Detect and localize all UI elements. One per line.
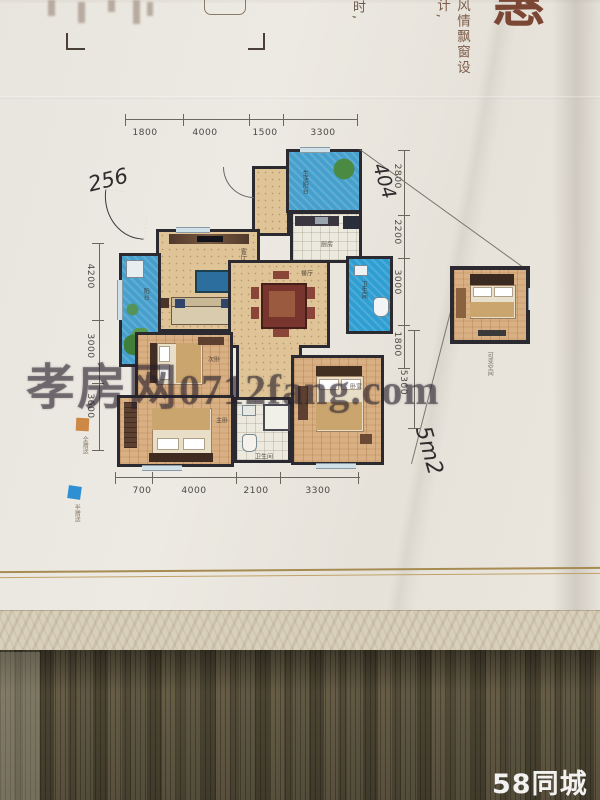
- window: [316, 463, 356, 469]
- plants: [331, 158, 357, 180]
- dim-tick: [115, 472, 116, 484]
- small-text-smudge: [108, 0, 115, 12]
- chair: [251, 287, 259, 299]
- room-dining: 餐厅: [228, 260, 330, 348]
- sofa-pillow: [175, 299, 185, 308]
- header-big-character: 惠: [492, 0, 558, 30]
- dresser: [478, 330, 506, 336]
- photo-of-floorplan-flyer: 时, 风情飘窗设计, 惠 生活阳台 厨房 卫生间 客厅: [0, 0, 600, 800]
- small-text-smudge: [147, 2, 153, 16]
- inset-flex-room: [450, 266, 530, 344]
- kitchen-sink: [315, 217, 328, 224]
- window: [117, 280, 123, 320]
- legend-label-full-gift: 全赠送: [80, 436, 89, 454]
- tv: [197, 236, 223, 242]
- watermark-site-url: 0712fang.com: [179, 367, 439, 415]
- dim-tick: [152, 472, 153, 484]
- room-label: 主卧: [216, 418, 228, 424]
- room-label: 餐厅: [301, 271, 313, 277]
- room-entry: [252, 166, 290, 236]
- window: [142, 465, 182, 471]
- dim-tick: [183, 114, 184, 126]
- room-label: 阳台: [141, 288, 150, 300]
- paper-crease: [0, 96, 600, 99]
- dining-table-center: [269, 291, 295, 317]
- crop-corner-mark: [66, 33, 85, 50]
- plants: [125, 302, 140, 317]
- dim-tick: [398, 258, 410, 259]
- bed-headboard: [149, 453, 213, 462]
- dim-tick: [280, 472, 281, 484]
- inset-window-gap: [528, 288, 533, 310]
- dim-bottom-4: 3300: [300, 485, 337, 495]
- dim-tick: [398, 325, 410, 326]
- dim-left-1: 4200: [85, 264, 95, 301]
- bath-sink: [354, 265, 368, 276]
- watermark-site-name: 孝房网: [26, 348, 179, 419]
- dim-tick: [236, 472, 237, 484]
- room-bath-1: 卫生间: [346, 256, 393, 334]
- room-label: 厨房: [321, 242, 333, 248]
- wardrobe: [456, 288, 466, 318]
- header-vertical-text-shi: 时,: [348, 0, 367, 21]
- chair: [307, 287, 315, 299]
- dim-tick: [92, 450, 104, 451]
- crop-corner-mark: [248, 33, 265, 50]
- legend-label-half-gift: 半赠送: [72, 504, 81, 522]
- small-text-smudge: [133, 0, 140, 24]
- header-vertical-text-design: 风情飘窗设计,: [432, 0, 472, 84]
- room-label: 卫生间: [255, 454, 273, 460]
- small-text-smudge: [48, 0, 55, 16]
- wardrobe: [198, 337, 224, 345]
- chair: [273, 329, 289, 337]
- window: [176, 227, 210, 233]
- dim-line-top: [125, 119, 357, 120]
- dim-tick: [398, 150, 410, 151]
- room-label: 客厅: [238, 248, 247, 260]
- dim-tick: [283, 114, 284, 126]
- dim-top-4: 3300: [305, 127, 342, 137]
- dim-tick: [357, 114, 358, 126]
- wood-floor-light-board: [0, 652, 40, 800]
- dim-tick: [125, 114, 126, 126]
- pillow: [473, 287, 492, 297]
- dim-tick: [92, 243, 104, 244]
- side-table: [160, 298, 169, 308]
- washing-machine: [126, 260, 144, 278]
- dim-tick: [358, 472, 359, 484]
- dim-right-3: 3000: [392, 270, 402, 307]
- legend-swatch-orange: [76, 418, 90, 432]
- dim-tick: [249, 114, 250, 126]
- dim-tick: [408, 330, 420, 331]
- stool: [360, 434, 372, 444]
- legend-swatch-blue: [67, 485, 82, 500]
- room-service-balcony: 生活阳台: [286, 149, 362, 213]
- dim-bottom-2: 4000: [176, 485, 213, 495]
- room-label: 生活阳台: [300, 170, 309, 194]
- chair: [251, 307, 259, 319]
- pillow: [494, 287, 513, 297]
- bed-headboard: [470, 274, 514, 285]
- brand-logo-outline: [204, 0, 246, 15]
- toilet: [373, 297, 389, 317]
- kitchen-appliance: [343, 216, 359, 229]
- chair: [307, 307, 315, 319]
- pillow: [183, 438, 205, 450]
- toilet: [242, 434, 257, 452]
- pillow: [157, 438, 179, 450]
- dim-bottom-3: 2100: [238, 485, 275, 495]
- dim-top-1: 1800: [127, 127, 164, 137]
- dim-tick: [92, 320, 104, 321]
- header-big-character-clipped: 惠: [492, 0, 558, 36]
- site-logo-58: 58同城: [492, 762, 588, 800]
- dim-top-2: 4000: [187, 127, 224, 137]
- chair: [273, 271, 289, 279]
- window: [300, 147, 330, 153]
- watermark: 孝房网 0712fang.com: [26, 348, 440, 419]
- blanket: [470, 302, 514, 317]
- dim-bottom-1: 700: [124, 485, 161, 495]
- dim-tick: [398, 215, 410, 216]
- dim-right-2: 2200: [392, 219, 402, 252]
- room-label: 卫生间: [359, 281, 368, 299]
- dim-top-3: 1500: [247, 127, 284, 137]
- inset-label: 可变空间: [485, 352, 494, 376]
- patterned-strip: [0, 610, 600, 653]
- small-text-smudge: [78, 2, 85, 23]
